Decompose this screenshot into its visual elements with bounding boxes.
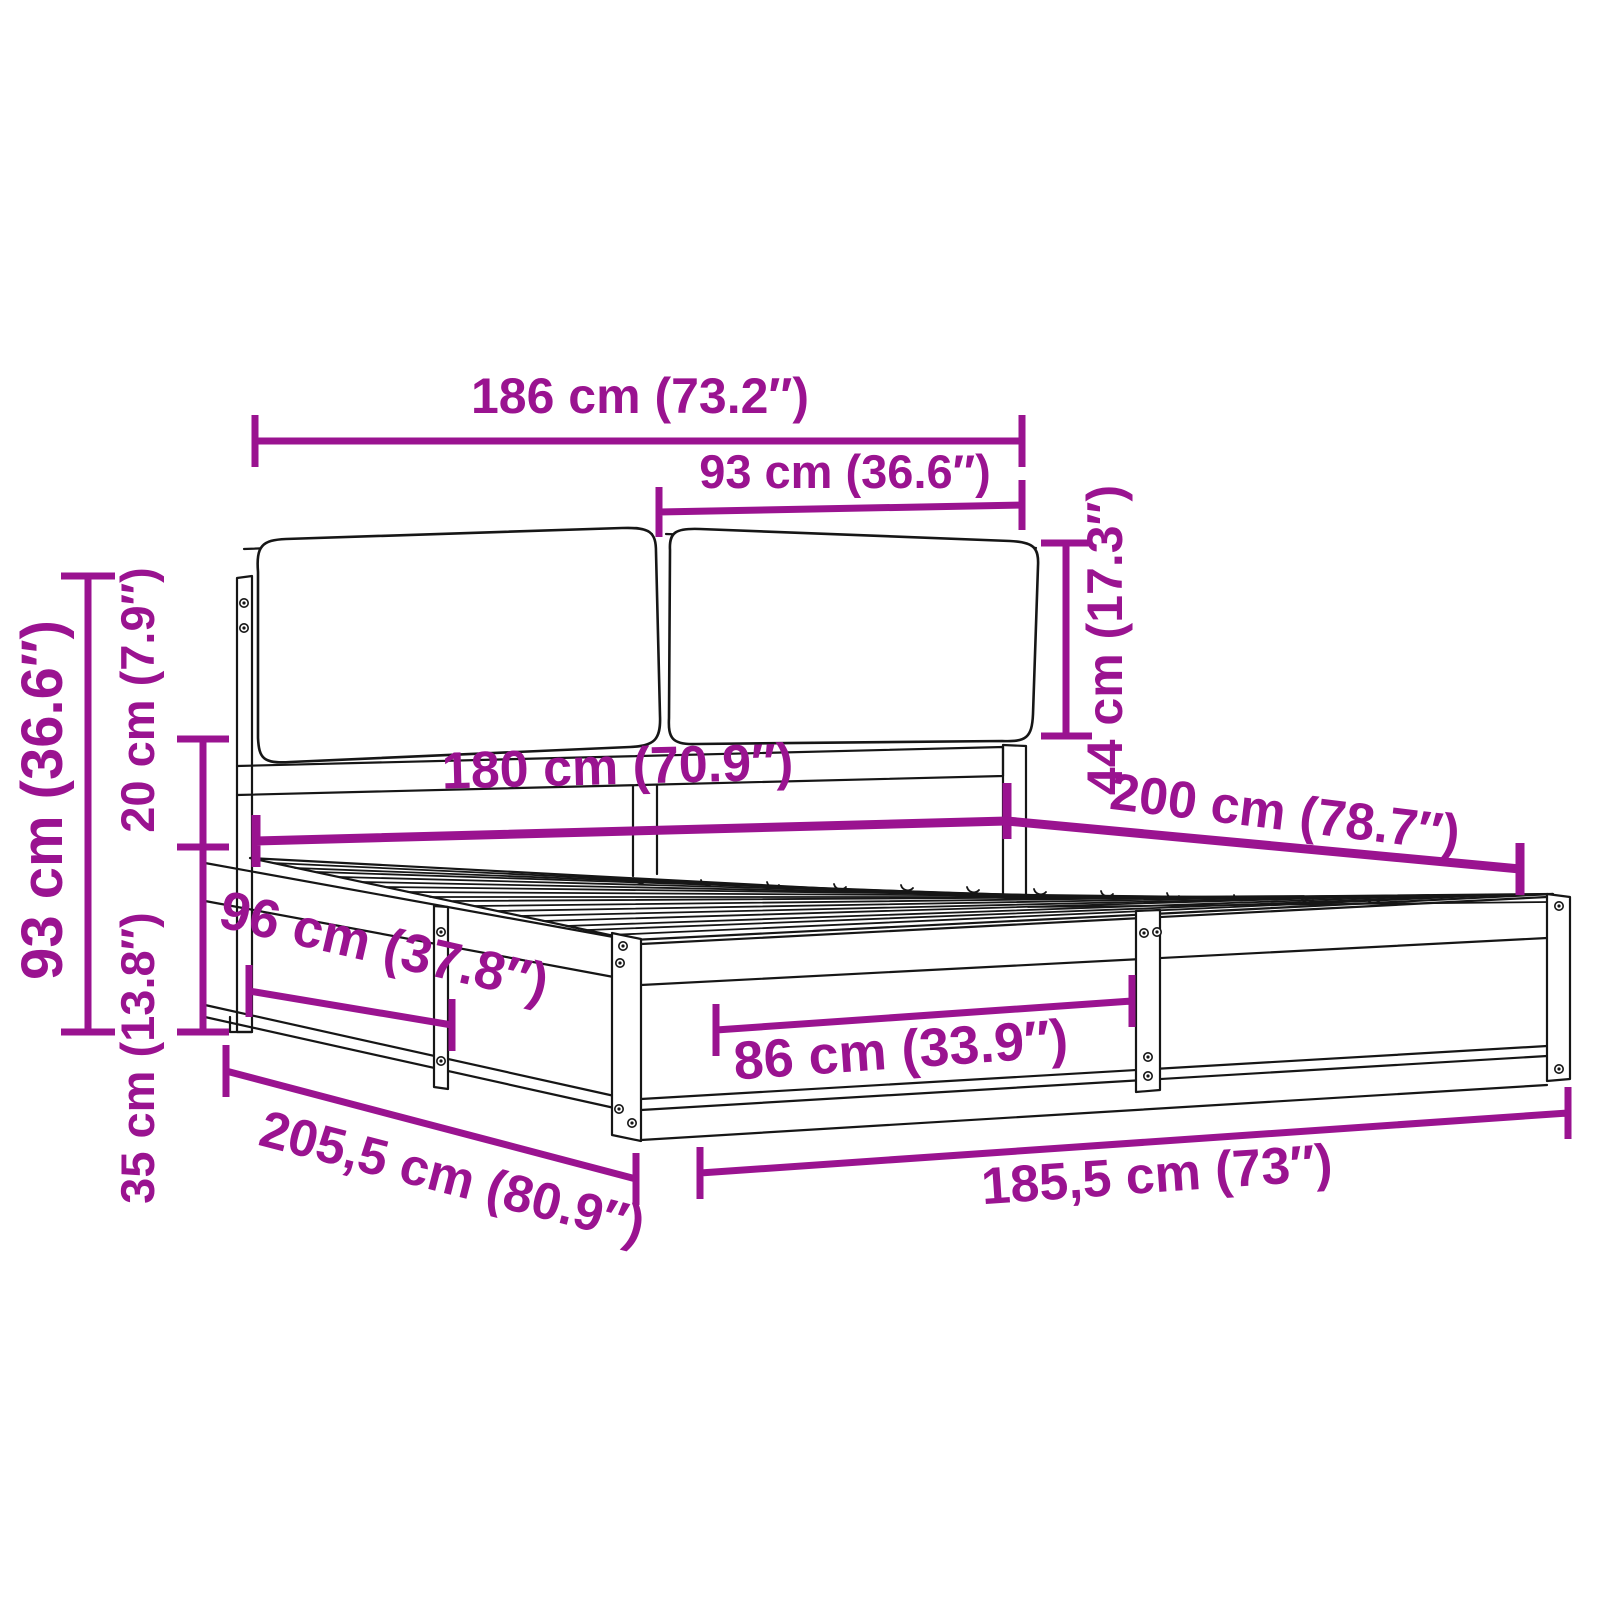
corner-post-front-right <box>1547 894 1570 1081</box>
dim-cushion-width: 93 cm (36.6″) <box>659 445 1022 537</box>
corner-post-front-left <box>612 933 641 1141</box>
headboard-cushion-left <box>258 528 660 762</box>
dim-front-section-label: 86 cm (33.9″) <box>732 1008 1070 1091</box>
dim-cushion-height: 44 cm (17.3″) <box>1041 485 1133 795</box>
dim-rail-gap-and-base-height: 20 cm (7.9″) 35 cm (13.8″) <box>111 567 229 1204</box>
bed-frame-diagram-svg: 186 cm (73.2″) 93 cm (36.6″) 44 cm (17.3… <box>0 0 1600 1600</box>
dim-total-length-label: 205,5 cm (80.9″) <box>254 1100 651 1255</box>
dim-inner-width-label: 180 cm (70.9″) <box>441 733 794 800</box>
dim-total-width: 185,5 cm (73″) <box>700 1087 1568 1216</box>
dim-base-height-label: 35 cm (13.8″) <box>111 912 164 1204</box>
dimension-diagram-image: 186 cm (73.2″) 93 cm (36.6″) 44 cm (17.3… <box>0 0 1600 1600</box>
front-panel-brace <box>1136 910 1161 1092</box>
dim-cushion-width-label: 93 cm (36.6″) <box>699 445 991 498</box>
dim-headboard-height-label: 93 cm (36.6″) <box>10 620 75 980</box>
headboard-cushion-right <box>669 529 1038 744</box>
dim-headboard-height: 93 cm (36.6″) <box>10 576 115 1032</box>
dim-rail-gap-label: 20 cm (7.9″) <box>111 567 164 832</box>
dim-total-width-label: 185,5 cm (73″) <box>979 1134 1334 1216</box>
dim-cushion-height-label: 44 cm (17.3″) <box>1077 485 1133 795</box>
headboard-post-left <box>237 576 252 1032</box>
dim-headboard-total-width-label: 186 cm (73.2″) <box>471 368 809 424</box>
